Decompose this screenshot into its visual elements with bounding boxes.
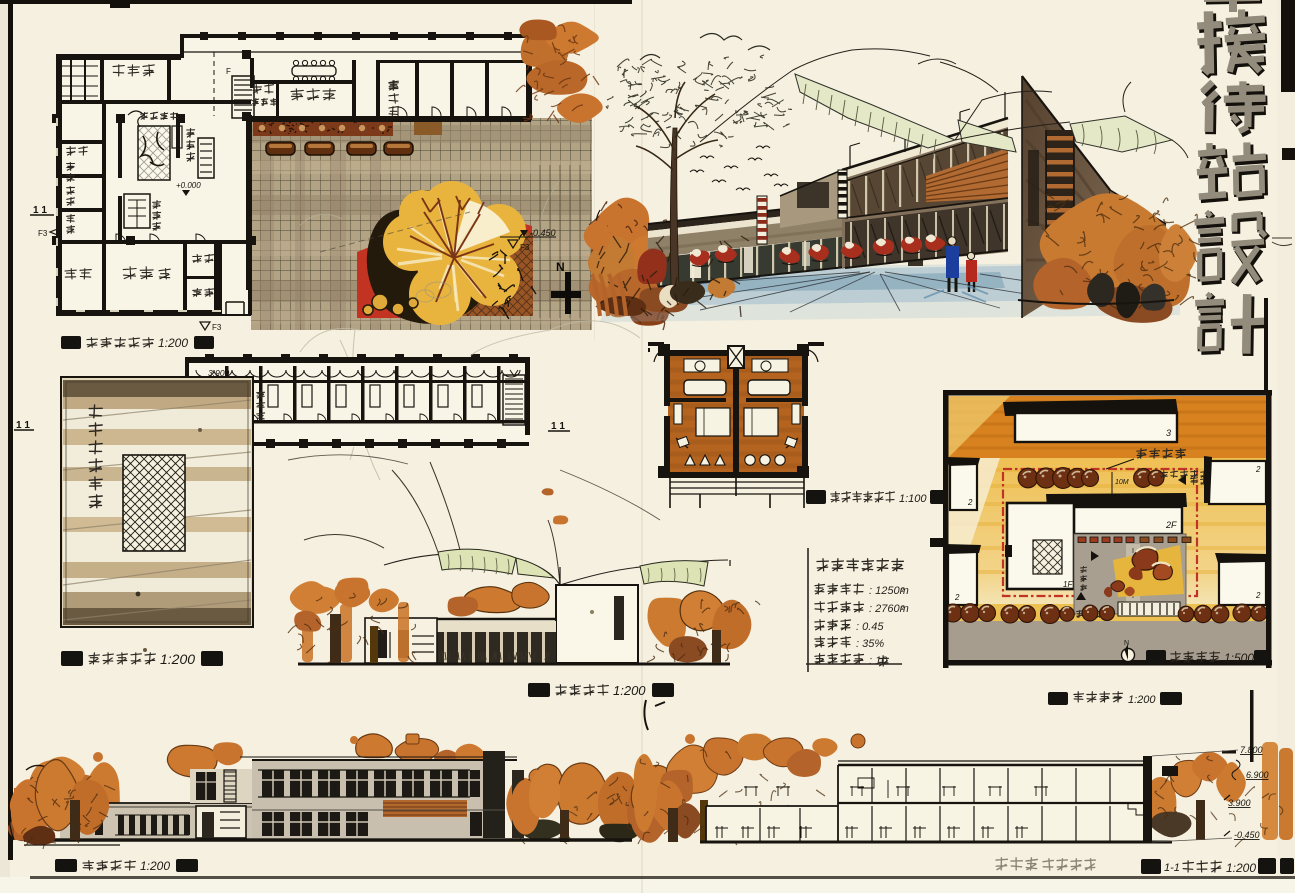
svg-text:1:200: 1:200 (160, 651, 195, 667)
svg-text:1:200: 1:200 (158, 336, 188, 350)
svg-text:3: 3 (1166, 428, 1171, 438)
svg-text:1-1: 1-1 (1164, 862, 1180, 874)
svg-text:F3: F3 (212, 323, 222, 332)
svg-text:2: 2 (954, 593, 960, 602)
svg-text:+0.000: +0.000 (176, 181, 201, 190)
svg-text:N: N (556, 260, 565, 274)
svg-text:: 10: : 10 (869, 655, 888, 667)
svg-text:7.800: 7.800 (1240, 745, 1263, 755)
svg-text:2: 2 (1255, 465, 1261, 474)
svg-text:3.900: 3.900 (1228, 798, 1251, 808)
svg-text:F3: F3 (520, 243, 530, 252)
svg-text:: 0.45: : 0.45 (856, 621, 884, 633)
svg-text:1:200: 1:200 (1128, 694, 1156, 706)
svg-text:F: F (226, 67, 231, 76)
svg-text:2: 2 (901, 587, 905, 594)
svg-text:1:200: 1:200 (1226, 861, 1256, 875)
svg-text:2: 2 (967, 498, 973, 507)
svg-text:2: 2 (901, 605, 905, 612)
svg-text:1F: 1F (1063, 580, 1073, 589)
svg-text:1:500: 1:500 (1224, 651, 1254, 665)
svg-text:1:200: 1:200 (613, 683, 646, 698)
svg-text:F3: F3 (38, 229, 48, 238)
svg-text:1:100: 1:100 (899, 493, 927, 505)
svg-text:-0.450: -0.450 (1234, 830, 1260, 840)
svg-text:2: 2 (1255, 591, 1261, 600)
svg-text:: 35%: : 35% (856, 638, 884, 650)
svg-text:1 1: 1 1 (16, 420, 30, 431)
svg-text:10M: 10M (1115, 479, 1129, 486)
svg-text:1 1: 1 1 (551, 421, 565, 432)
svg-text:1 1: 1 1 (33, 205, 47, 216)
svg-text:2F: 2F (1165, 520, 1177, 530)
svg-text:6.900: 6.900 (1246, 770, 1269, 780)
svg-text:1:200: 1:200 (140, 859, 170, 873)
svg-text:N: N (1124, 640, 1129, 647)
